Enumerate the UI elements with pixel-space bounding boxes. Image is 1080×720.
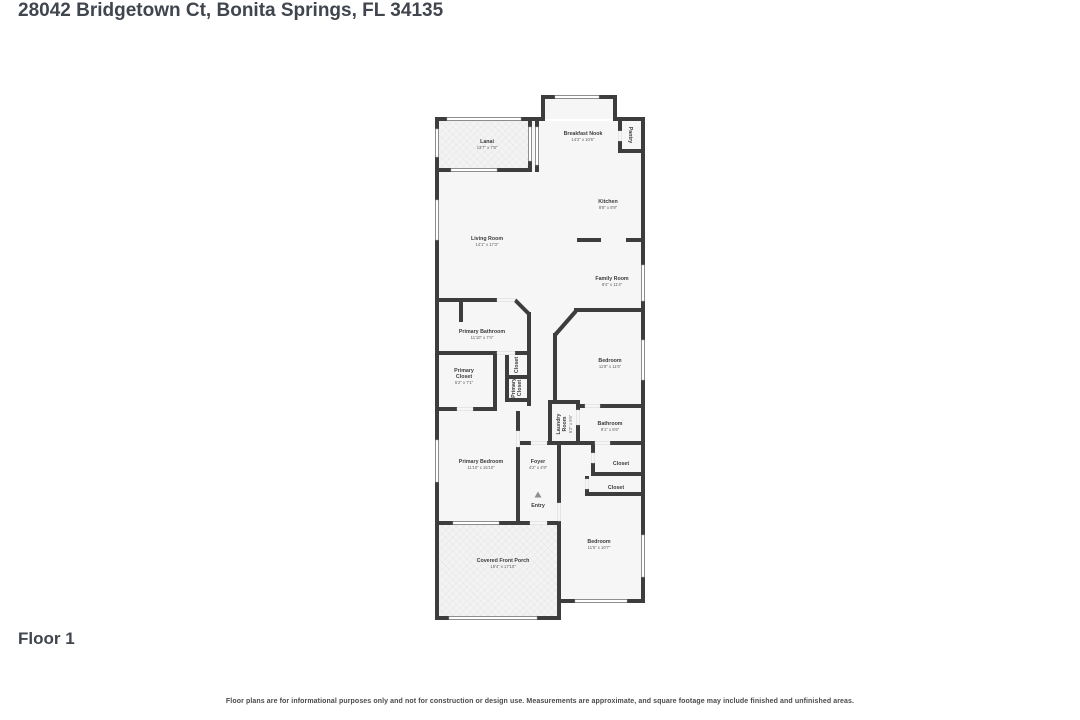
room-label: Kitchen8'8" x 8'9" [598, 199, 617, 210]
room-name-text: Closet [517, 380, 523, 396]
room-dims-text: 4'2" x 4'9" [529, 465, 548, 470]
room-label: Bathroom8'1" x 5'6" [597, 421, 622, 432]
room-dims-text: 5'2" x 7'1" [455, 380, 474, 385]
room-label: Bedroom11'8" x 11'6" [598, 358, 622, 369]
floor-plan-page: 28042 Bridgetown Ct, Bonita Springs, FL … [0, 0, 1080, 720]
room-label: Closet [514, 357, 520, 373]
room-name-text: Closet [613, 461, 629, 467]
room-label: PrimaryCloset [511, 378, 523, 398]
room-label: Closet [608, 485, 624, 491]
room-dims-text: 11'10" x 7'4" [471, 335, 494, 340]
room-dims-text: 8'1" x 5'6" [601, 427, 620, 432]
floor-label: Floor 1 [18, 629, 75, 649]
room-name-text: Pantry [627, 127, 633, 144]
room-label: Living Room14'1" x 17'3" [471, 236, 503, 247]
room-dims-text: 13'7" x 7'8" [477, 145, 498, 150]
room-label: LaundryRoom5'2" x 5'6" [556, 414, 573, 435]
room-name-text: Closet [608, 485, 624, 491]
disclaimer-text: Floor plans are for informational purpos… [0, 698, 1080, 705]
room-dims-text: 8'8" x 8'9" [599, 205, 618, 210]
room-label: Pantry [627, 127, 633, 144]
room-name-text: Entry [531, 503, 545, 509]
floor-plan-svg: Lanai13'7" x 7'8"Breakfast Nook14'2" x 1… [435, 95, 645, 622]
room-dims-text: 16'4" x 17'10" [490, 564, 516, 569]
room-dims-text: 5'2" x 5'6" [568, 414, 573, 433]
room-dims-text: 11'10" x 15'10" [467, 465, 495, 470]
room-dims-text: 14'2" x 10'6" [572, 137, 595, 142]
room-dims-text: 8'4" x 11'4" [602, 282, 623, 287]
page-title: 28042 Bridgetown Ct, Bonita Springs, FL … [18, 0, 443, 22]
room-label: Closet [613, 461, 629, 467]
room-dims-text: 11'5" x 10'7" [588, 545, 611, 550]
room-label: PrimaryCloset5'2" x 7'1" [454, 368, 474, 385]
room-label: Bedroom11'5" x 10'7" [587, 539, 611, 550]
room-label: Foyer4'2" x 4'9" [529, 459, 548, 470]
room-name-text: Closet [514, 357, 520, 373]
porch-hatch [439, 525, 557, 616]
room-label: Entry [531, 503, 545, 509]
room-dims-text: 14'1" x 17'3" [476, 242, 499, 247]
room-dims-text: 11'8" x 11'6" [599, 364, 622, 369]
